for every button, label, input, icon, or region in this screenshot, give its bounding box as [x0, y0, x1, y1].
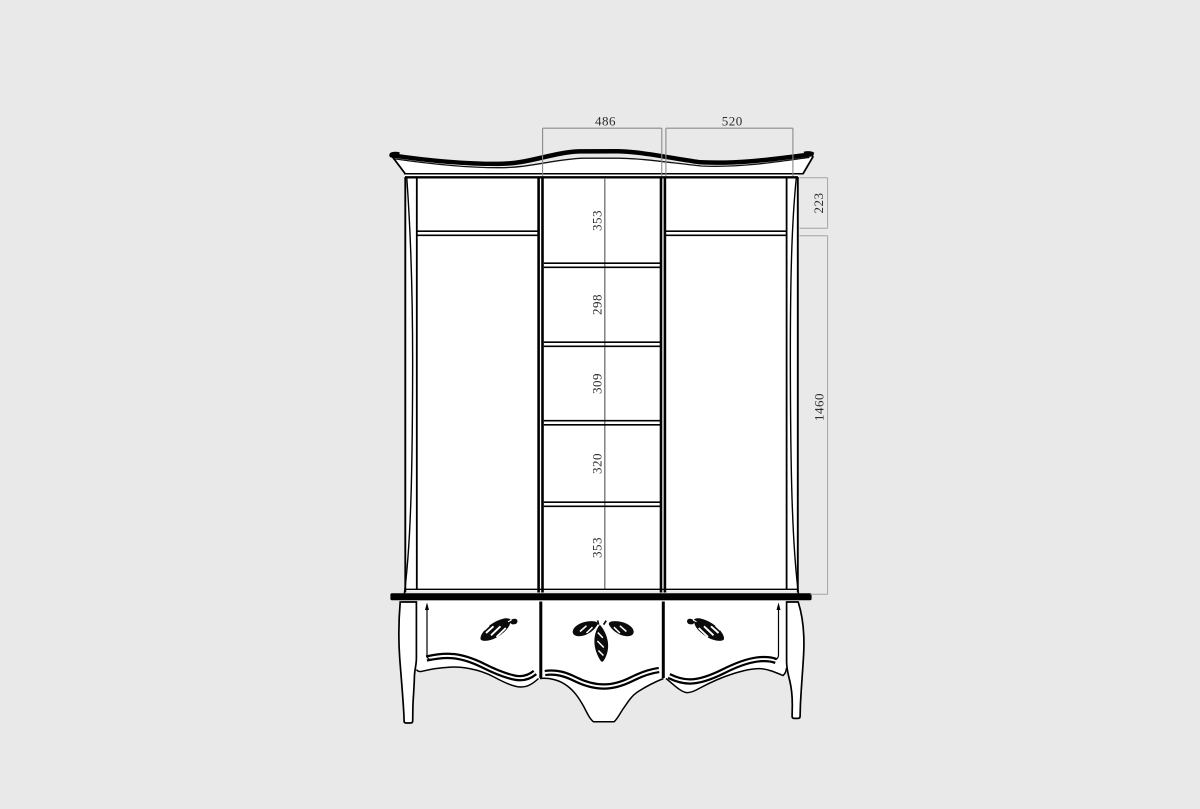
svg-text:486: 486	[595, 113, 616, 128]
svg-text:520: 520	[722, 113, 743, 128]
svg-text:298: 298	[590, 294, 605, 315]
svg-text:353: 353	[590, 210, 605, 231]
svg-text:309: 309	[590, 373, 605, 394]
svg-text:320: 320	[590, 453, 605, 474]
svg-text:1460: 1460	[812, 393, 827, 421]
svg-text:223: 223	[811, 193, 826, 214]
svg-text:353: 353	[590, 537, 605, 558]
